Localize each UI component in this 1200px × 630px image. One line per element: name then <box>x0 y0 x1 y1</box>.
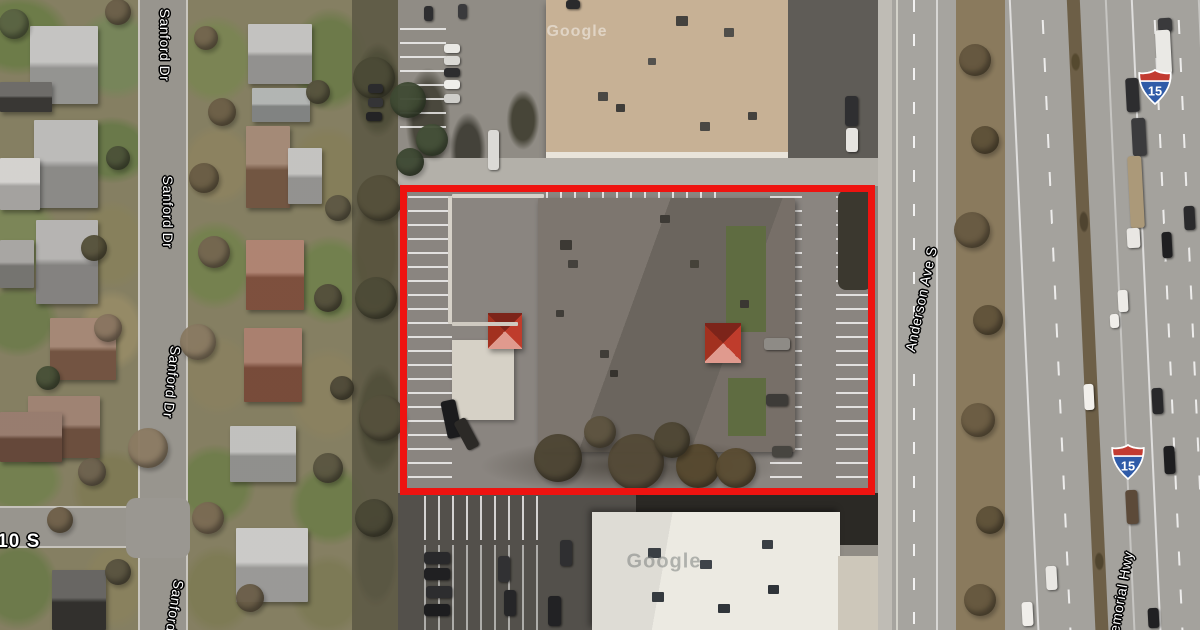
tree <box>78 458 106 486</box>
tree <box>416 124 448 156</box>
vehicle <box>424 604 450 616</box>
vehicle <box>1161 232 1172 258</box>
interstate-shield-icon: 15 <box>1138 69 1172 105</box>
vehicle <box>1155 30 1172 75</box>
house-roof <box>52 570 106 630</box>
vehicle <box>366 112 382 121</box>
interstate-shield-icon: 15 <box>1111 444 1145 480</box>
road-line <box>936 0 938 630</box>
vehicle <box>458 4 467 19</box>
rooftop-unit <box>718 604 730 613</box>
vehicle <box>488 130 499 170</box>
vehicle <box>498 556 510 582</box>
i-15-shield-south: 15 <box>1111 444 1145 480</box>
tree <box>314 284 342 312</box>
street-label-sanford-dr-2: Sanford Dr <box>160 176 176 249</box>
tree <box>192 502 224 534</box>
vehicle <box>1117 290 1128 312</box>
tree <box>105 0 131 25</box>
vehicle <box>444 68 460 77</box>
dark-pavement-area <box>788 0 880 176</box>
parcel-highlight-box <box>400 185 875 495</box>
tree <box>208 98 236 126</box>
vehicle <box>548 596 561 626</box>
rooftop-unit <box>700 560 712 569</box>
tree <box>325 195 351 221</box>
tree <box>330 376 354 400</box>
tree <box>961 403 995 437</box>
street-label-sanford-dr-1: Sanford Dr <box>157 9 173 82</box>
vehicle <box>426 586 452 598</box>
vehicle <box>444 44 460 53</box>
tree <box>396 148 424 176</box>
tree <box>976 506 1004 534</box>
tree <box>959 44 991 76</box>
vehicle <box>1083 384 1094 410</box>
house-roof <box>0 158 40 210</box>
house-roof <box>0 240 34 288</box>
route-number: 15 <box>1148 84 1162 99</box>
vehicle <box>1147 608 1159 629</box>
tree <box>236 584 264 612</box>
vehicle <box>444 56 460 65</box>
vehicle <box>1110 314 1120 328</box>
tree <box>105 559 131 585</box>
rooftop-unit <box>768 585 779 594</box>
rooftop-unit <box>676 16 688 26</box>
tree <box>106 146 130 170</box>
tree <box>306 80 330 104</box>
tree <box>0 9 29 39</box>
tree <box>390 82 426 118</box>
rooftop-unit <box>700 122 710 131</box>
vehicle <box>846 128 858 152</box>
tree <box>198 236 230 268</box>
vehicle <box>560 540 572 566</box>
house-roof <box>244 328 302 402</box>
tree <box>355 277 397 319</box>
tree <box>94 314 122 342</box>
vehicle <box>1021 602 1033 627</box>
route-number: 15 <box>1121 459 1135 474</box>
rooftop-unit <box>598 92 608 101</box>
rooftop-unit <box>652 592 664 602</box>
road-line <box>896 0 898 630</box>
house-roof <box>246 240 304 310</box>
tree <box>194 26 218 50</box>
tree <box>47 507 73 533</box>
vehicle <box>368 84 383 93</box>
road-intersection <box>126 498 190 558</box>
house-roof <box>36 220 98 304</box>
house-roof <box>288 148 322 204</box>
satellite-map-canvas[interactable]: Sanford DrSanford DrSanford DrSanford510… <box>0 0 1200 630</box>
rooftop-unit <box>762 540 773 549</box>
rooftop-unit <box>724 28 734 37</box>
tree <box>128 428 168 468</box>
house-roof <box>252 88 310 122</box>
house-roof <box>0 82 52 112</box>
vehicle <box>1125 490 1139 525</box>
tree <box>971 126 999 154</box>
tree <box>973 305 1003 335</box>
rooftop-unit <box>616 104 625 112</box>
vehicle <box>1126 228 1140 249</box>
vehicle <box>1045 566 1057 591</box>
i-15-shield-north: 15 <box>1138 69 1172 105</box>
vehicle <box>845 96 858 126</box>
house-roof <box>0 412 62 462</box>
vehicle <box>444 94 460 103</box>
house-roof <box>230 426 296 482</box>
vehicle <box>1131 118 1147 157</box>
vehicle <box>1151 388 1163 415</box>
rooftop-unit <box>748 112 757 120</box>
vehicle <box>424 552 450 564</box>
vehicle <box>1163 446 1175 475</box>
tree <box>36 366 60 390</box>
house-roof <box>248 24 312 84</box>
vehicle <box>368 98 383 107</box>
vehicle <box>444 80 460 89</box>
vehicle <box>566 0 580 9</box>
tree <box>357 175 403 221</box>
white-building-annex <box>838 556 878 630</box>
vehicle <box>424 6 433 21</box>
house-roof <box>246 126 290 208</box>
vehicle <box>424 568 450 580</box>
rooftop-unit <box>648 58 656 65</box>
tree <box>954 212 990 248</box>
tree <box>189 163 219 193</box>
google-watermark: Google <box>627 551 702 574</box>
tree <box>81 235 107 261</box>
tree <box>313 453 343 483</box>
street-label-510-s: 510 S <box>0 531 40 553</box>
tree <box>359 395 405 441</box>
tree <box>355 499 393 537</box>
google-watermark: Google <box>546 23 607 41</box>
tree <box>180 324 216 360</box>
vehicle <box>504 590 516 616</box>
parking-stripes <box>424 496 544 540</box>
house-roof <box>34 120 98 208</box>
vehicle <box>1183 206 1195 231</box>
tree <box>964 584 996 616</box>
